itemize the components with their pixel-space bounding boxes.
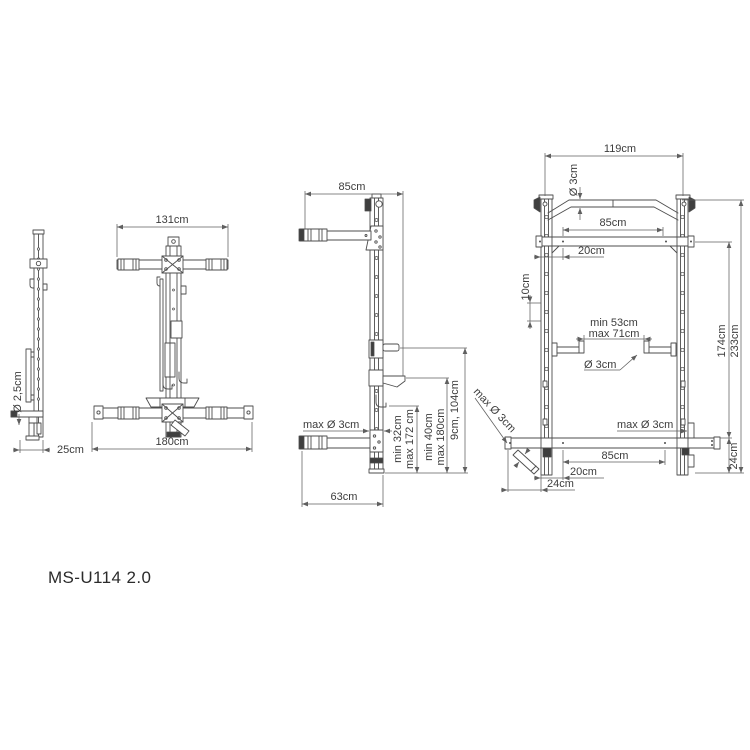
dim-label-top-offset: 20cm	[578, 245, 605, 257]
dim-label-folded-top-width: 131cm	[155, 214, 188, 226]
view-side-open: 85cm max Ø 3cm min 32cm max 172 cm min 4…	[299, 181, 468, 507]
dim-label-side-peg-diameter: max Ø 3cm	[617, 419, 673, 431]
dim-label-bottom-inset: 24cm	[547, 478, 574, 490]
dim-label-bottom-offset: 20cm	[570, 466, 597, 478]
drawing-canvas: Ø 2,5cm 25cm	[0, 0, 750, 750]
model-title: MS-U114 2.0	[48, 568, 151, 587]
dim-label-handle-diameter: Ø 2,5cm	[12, 371, 24, 413]
dim-label-base-height: 24cm	[728, 443, 740, 470]
dim-label-total-width: 119cm	[604, 143, 636, 155]
dim-label-total-height: 233cm	[729, 324, 741, 357]
dim-label-folded-base-width: 180cm	[155, 436, 188, 448]
technical-drawing: Ø 2,5cm 25cm	[0, 0, 750, 750]
dim-label-cup-diameter: Ø 3cm	[584, 359, 616, 371]
view-front-open: 119cm Ø 3cm 85cm 20cm 10cm min 53cm max …	[471, 143, 744, 492]
dim-label-hole-spacing: 10cm	[520, 274, 532, 301]
dim-label-folded-depth: 25cm	[57, 444, 84, 456]
dim-label-diagonal-peg-diameter: max Ø 3cm	[471, 386, 518, 435]
dim-label-hook-min: min 32cm	[392, 415, 404, 463]
dim-label-max-bar-diameter: max Ø 3cm	[303, 419, 359, 431]
view-side-folded: Ø 2,5cm 25cm	[11, 230, 84, 456]
dim-label-shelf-min: min 40cm	[423, 413, 435, 461]
dim-label-pullup-bar-diameter: Ø 3cm	[568, 164, 580, 196]
dim-label-peg-range: 9cm, 104cm	[449, 380, 461, 440]
dim-label-hook-max: max 172 cm	[404, 409, 416, 469]
dim-label-shelf-max: max 180cm	[435, 409, 447, 466]
dim-label-bottom-span: 85cm	[602, 450, 629, 462]
dim-label-cup-gap-max: max 71cm	[589, 328, 640, 340]
view-front-folded: 131cm 180cm	[92, 214, 253, 452]
dim-label-top-span: 85cm	[600, 217, 627, 229]
dim-label-base-depth: 63cm	[331, 491, 358, 503]
dim-label-mount-height: 174cm	[716, 324, 728, 357]
dim-label-open-depth: 85cm	[339, 181, 366, 193]
folded-front-structure	[94, 237, 253, 437]
